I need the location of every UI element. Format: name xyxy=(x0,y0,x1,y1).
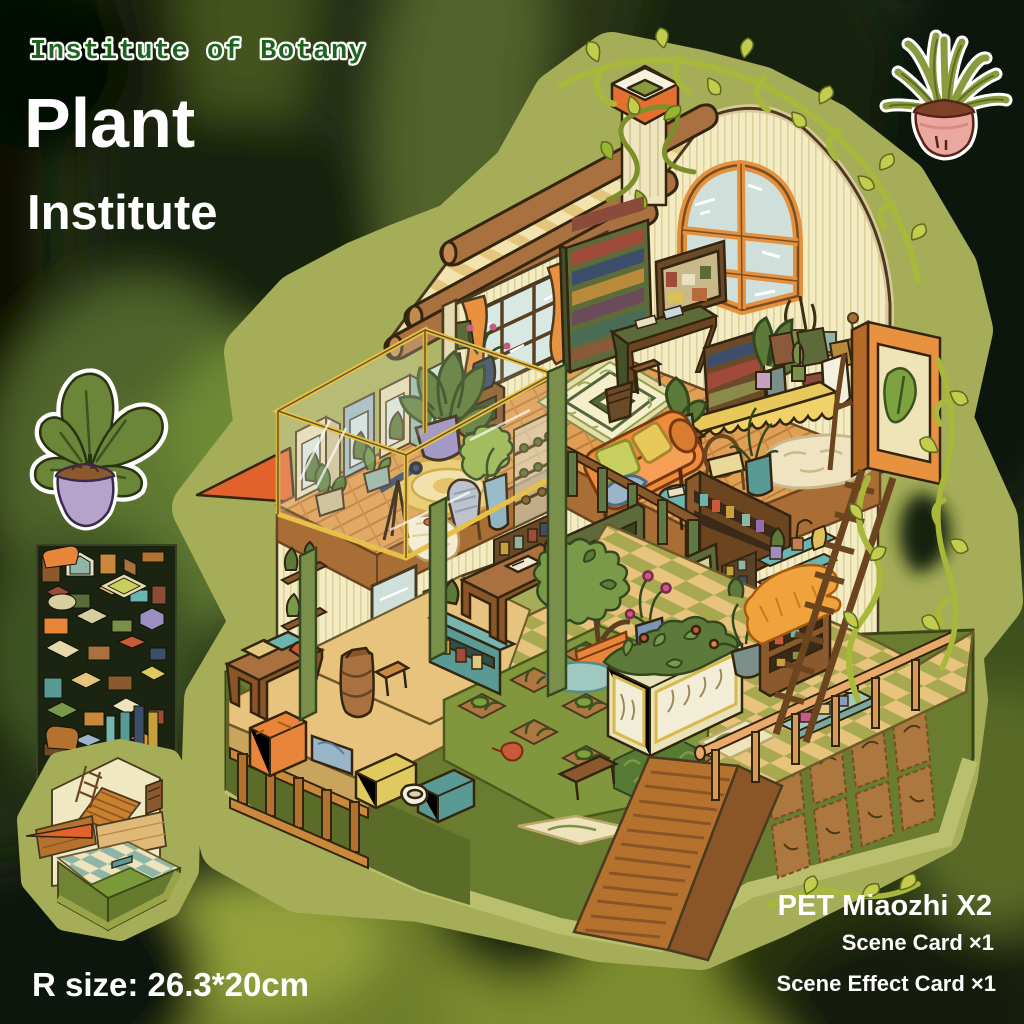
svg-text:Institute: Institute xyxy=(27,186,218,240)
svg-text:Plant: Plant xyxy=(24,84,195,162)
svg-text:Institute of Botany: Institute of Botany xyxy=(30,37,366,67)
svg-text:R size: 26.3*20cm: R size: 26.3*20cm xyxy=(32,966,309,1003)
svg-text:PET Miaozhi X2: PET Miaozhi X2 xyxy=(778,890,992,922)
svg-text:Scene Card ×1: Scene Card ×1 xyxy=(842,930,994,955)
svg-text:Scene Effect Card ×1: Scene Effect Card ×1 xyxy=(777,971,996,996)
